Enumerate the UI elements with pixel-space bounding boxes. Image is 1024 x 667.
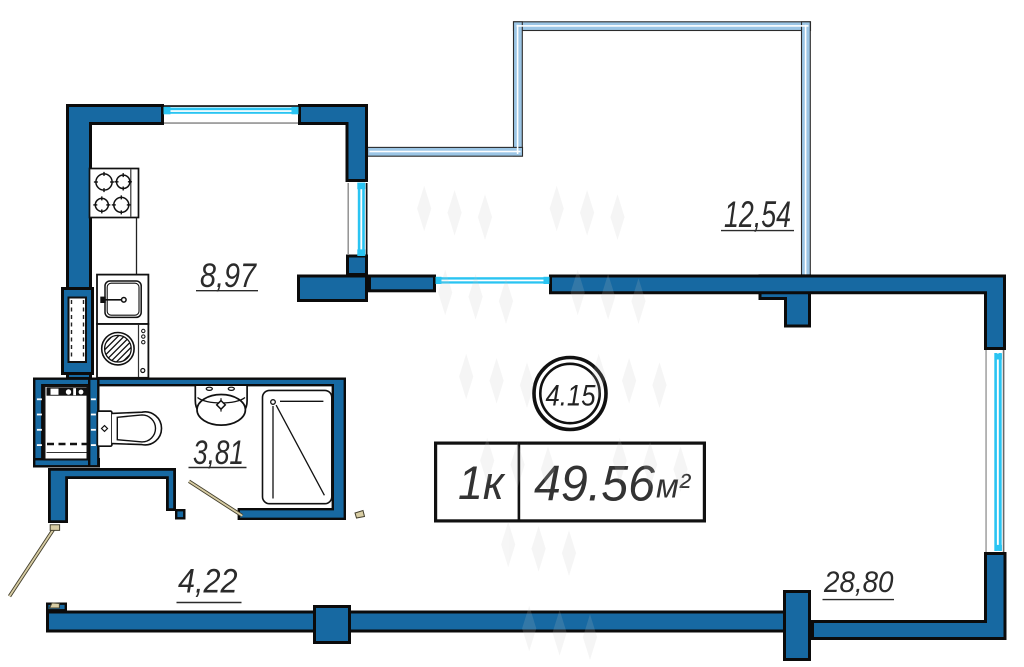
svg-text:8,97: 8,97 — [200, 257, 258, 295]
svg-text:3,81: 3,81 — [193, 434, 244, 472]
svg-text:12,54: 12,54 — [724, 194, 791, 235]
svg-text:28,80: 28,80 — [823, 566, 894, 599]
svg-text:4,22: 4,22 — [178, 563, 238, 601]
svg-text:4.15: 4.15 — [546, 380, 596, 413]
